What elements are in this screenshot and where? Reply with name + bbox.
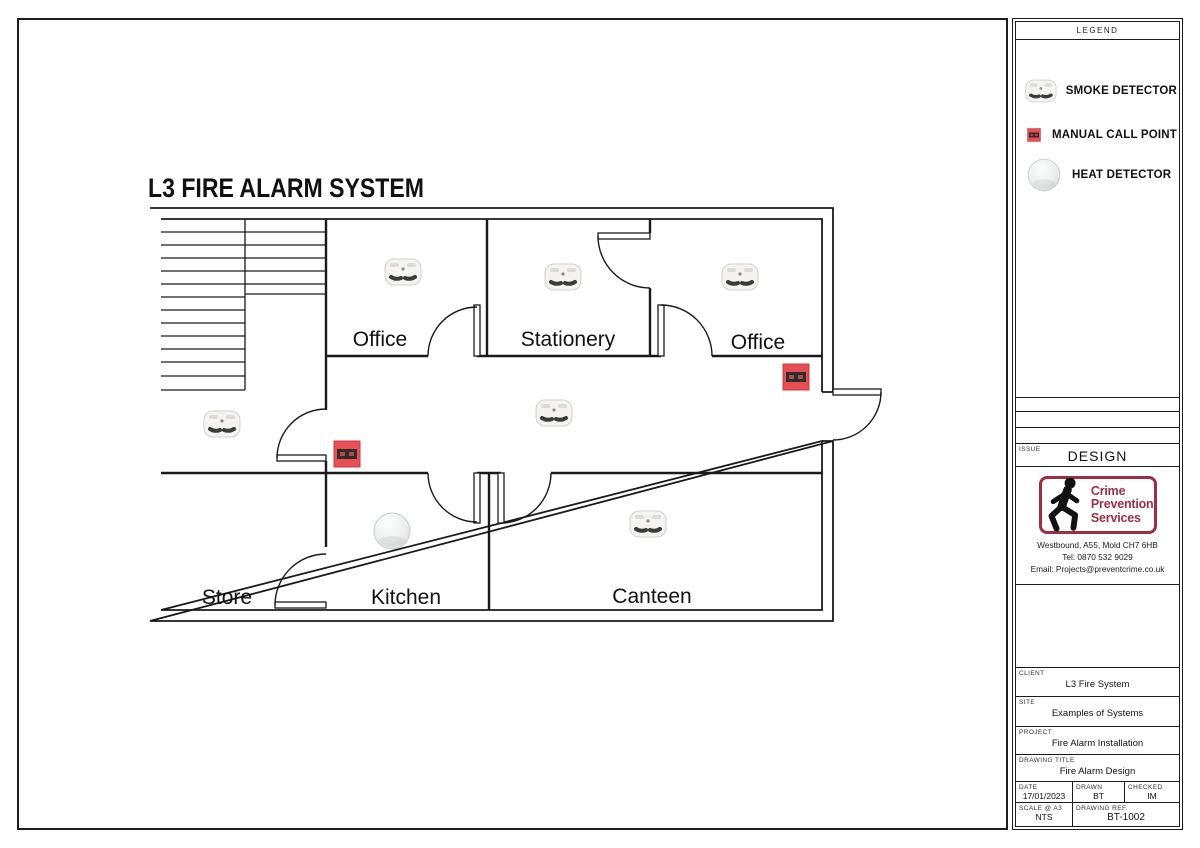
office-right-door-arc	[661, 305, 712, 356]
legend-item-heat: HEAT DETECTOR	[1024, 158, 1177, 192]
plan-title: L3 FIRE ALARM SYSTEM	[148, 173, 424, 203]
smoke-detector-symbol	[385, 259, 421, 285]
office-right-door-leaf	[658, 305, 664, 356]
revision-row-1	[1016, 398, 1179, 412]
scale-cell: SCALE @ A3 NTS	[1016, 803, 1073, 826]
company-name-line3: Services	[1091, 512, 1154, 526]
drawing-ref-cell: DRAWING REF. BT-1002	[1073, 803, 1179, 826]
client-row: CLIENT L3 Fire System	[1016, 668, 1179, 697]
manual-call-point-symbol	[783, 364, 809, 390]
store-door-leaf	[275, 602, 326, 608]
site-label: SITE	[1019, 699, 1035, 706]
revision-row-2	[1016, 412, 1179, 428]
heat-detector-symbol	[374, 513, 410, 549]
site-value: Examples of Systems	[1016, 697, 1179, 719]
room-label-canteen: Canteen	[612, 585, 691, 608]
revision-row-3	[1016, 428, 1179, 444]
stationery-door-arc	[598, 236, 650, 288]
legend-zone: SMOKE DETECTOR MANUAL CALL POINT HEAT DE…	[1016, 40, 1179, 398]
office-left-door-arc	[428, 307, 477, 356]
doors	[275, 233, 881, 608]
checked-cell: CHECKED IM	[1125, 782, 1179, 802]
smoke-detector-symbol	[536, 400, 572, 426]
smoke-detector-symbol	[204, 411, 240, 437]
legend-label-heat: HEAT DETECTOR	[1072, 169, 1171, 181]
smoke-detector-symbol	[545, 264, 581, 290]
canteen-door-arc	[501, 473, 551, 523]
smoke-detector-symbol	[630, 511, 666, 537]
legend-header: LEGEND	[1016, 22, 1179, 40]
room-label-office-left: Office	[353, 328, 407, 351]
kitchen-door-leaf	[474, 473, 480, 523]
exit-door-leaf	[833, 389, 881, 395]
smoke-detector-symbol	[722, 264, 758, 290]
scale-ref-row: SCALE @ A3 NTS DRAWING REF. BT-1002	[1016, 803, 1179, 826]
stationery-door-leaf	[598, 233, 650, 239]
room-labels: Office Stationery Office Store Kitchen C…	[202, 328, 785, 609]
manual-call-point-icon	[1024, 120, 1044, 150]
company-address: Westbound, A55, Mold CH7 6HB Tel: 0870 5…	[1016, 539, 1179, 575]
legend-item-smoke: SMOKE DETECTOR	[1024, 76, 1177, 106]
company-name: Crime Prevention Services	[1091, 485, 1154, 526]
site-row: SITE Examples of Systems	[1016, 697, 1179, 727]
room-label-kitchen: Kitchen	[371, 586, 441, 609]
hall-door-leaf	[277, 455, 326, 461]
staircase	[161, 219, 326, 390]
office-left-door-leaf	[474, 305, 480, 356]
title-block-inner: LEGEND SMOKE DETECTOR MANUAL CALL POINT …	[1015, 21, 1180, 827]
drawn-cell: DRAWN BT	[1073, 782, 1125, 802]
company-tel: Tel: 0870 532 9029	[1016, 551, 1179, 563]
kitchen-door-arc	[428, 473, 477, 522]
manual-call-point-symbol	[334, 441, 360, 467]
company-name-line1: Crime	[1091, 485, 1154, 499]
legend-item-mcp: MANUAL CALL POINT	[1024, 120, 1177, 150]
company-name-line2: Prevention	[1091, 498, 1154, 512]
issue-label: ISSUE	[1019, 446, 1041, 453]
date-label: DATE	[1019, 784, 1037, 791]
date-drawn-checked-row: DATE 17/01/2023 DRAWN BT CHECKED IM	[1016, 782, 1179, 803]
legend-label-mcp: MANUAL CALL POINT	[1052, 129, 1177, 141]
checked-label: CHECKED	[1128, 784, 1163, 791]
room-label-store: Store	[202, 586, 252, 609]
legend-label-smoke: SMOKE DETECTOR	[1066, 85, 1177, 97]
scale-label: SCALE @ A3	[1019, 805, 1062, 812]
date-cell: DATE 17/01/2023	[1016, 782, 1073, 802]
room-label-stationery: Stationery	[521, 328, 616, 351]
company-email: Email: Projects@preventcrime.co.uk	[1016, 563, 1179, 575]
drawing-ref-label: DRAWING REF.	[1076, 805, 1128, 812]
canteen-door-leaf	[498, 473, 504, 523]
notes-zone	[1016, 585, 1179, 668]
company-box: Crime Prevention Services Westbound, A55…	[1016, 467, 1179, 585]
exit-door-arc	[833, 392, 881, 440]
client-label: CLIENT	[1019, 670, 1045, 677]
company-logo: Crime Prevention Services	[1039, 476, 1157, 534]
drawing-title-row: DRAWING TITLE Fire Alarm Design	[1016, 755, 1179, 782]
company-address-line: Westbound, A55, Mold CH7 6HB	[1016, 539, 1179, 551]
device-layer	[204, 259, 809, 549]
heat-detector-icon	[1024, 158, 1064, 192]
issue-row: ISSUE DESIGN	[1016, 444, 1179, 467]
drawing-title-label: DRAWING TITLE	[1019, 757, 1075, 764]
room-label-office-right: Office	[731, 331, 785, 354]
title-block-panel: LEGEND SMOKE DETECTOR MANUAL CALL POINT …	[1012, 18, 1183, 830]
floor-plan: L3 FIRE ALARM SYSTEM	[0, 0, 1010, 848]
project-label: PROJECT	[1019, 729, 1052, 736]
running-man-icon	[1042, 478, 1091, 532]
hall-door-arc	[277, 409, 326, 458]
drawn-label: DRAWN	[1076, 784, 1102, 791]
project-row: PROJECT Fire Alarm Installation	[1016, 727, 1179, 755]
smoke-detector-icon	[1024, 76, 1058, 106]
